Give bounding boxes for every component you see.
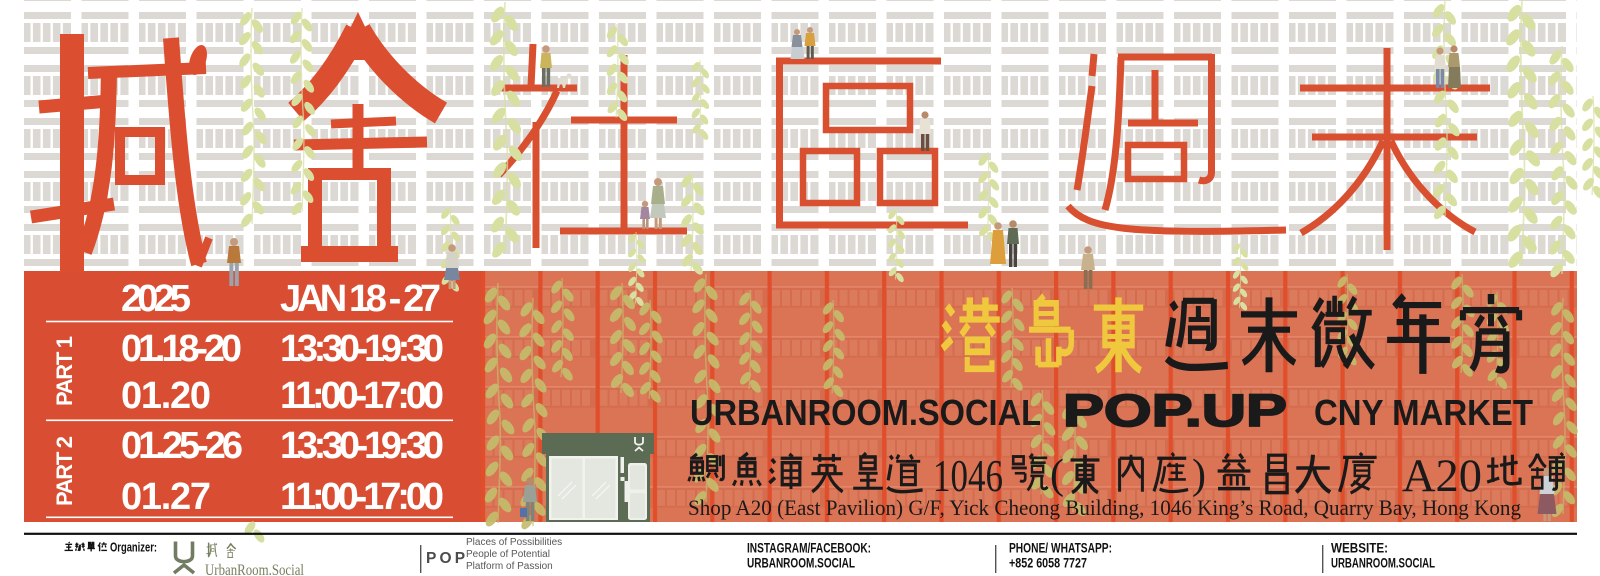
svg-text:01.18-20: 01.18-20 [121, 328, 242, 370]
svg-text:People of Potential: People of Potential [466, 549, 550, 560]
svg-text:Organizer:: Organizer: [110, 541, 157, 555]
svg-text:PART 2: PART 2 [52, 436, 77, 506]
svg-text:Places of Possibilities: Places of Possibilities [466, 537, 562, 548]
svg-text:Platform of Passion: Platform of Passion [466, 561, 553, 572]
svg-text:PART 1: PART 1 [52, 336, 77, 406]
svg-text:13:30-19:30: 13:30-19:30 [280, 425, 444, 467]
svg-text:JAN 18 - 27: JAN 18 - 27 [280, 278, 441, 320]
svg-text:PHONE/ WHATSAPP:: PHONE/ WHATSAPP: [1009, 541, 1112, 556]
svg-text:Shop A20 (East Pavilion) G/F,: Shop A20 (East Pavilion) G/F, Yick Cheon… [688, 495, 1521, 520]
svg-text:01.27: 01.27 [121, 476, 211, 518]
svg-text:+852 6058 7727: +852 6058 7727 [1009, 556, 1087, 571]
svg-text:01.25-26: 01.25-26 [121, 425, 243, 467]
svg-text:URBANROOM.SOCIAL: URBANROOM.SOCIAL [1331, 556, 1435, 571]
svg-text:URBANROOM.SOCIAL: URBANROOM.SOCIAL [747, 556, 855, 571]
svg-text:1046: 1046 [933, 450, 1003, 501]
svg-text:11:00-17:00: 11:00-17:00 [280, 375, 444, 417]
svg-text:POP.UP: POP.UP [1063, 385, 1287, 436]
svg-text:(: ( [1050, 452, 1064, 498]
svg-text:): ) [1192, 452, 1206, 498]
svg-text:CNY MARKET: CNY MARKET [1314, 392, 1533, 433]
svg-text:UrbanRoom.Social: UrbanRoom.Social [205, 562, 304, 576]
svg-text:URBANROOM.SOCIAL: URBANROOM.SOCIAL [690, 392, 1041, 433]
svg-text:11:00-17:00: 11:00-17:00 [280, 476, 444, 518]
svg-text:WEBSITE:: WEBSITE: [1331, 541, 1388, 556]
svg-text:2025: 2025 [121, 278, 191, 320]
svg-text:13:30-19:30: 13:30-19:30 [280, 328, 444, 370]
svg-text:01.20: 01.20 [121, 375, 211, 417]
svg-text:POP: POP [426, 550, 468, 567]
svg-text:INSTAGRAM/FACEBOOK:: INSTAGRAM/FACEBOOK: [747, 541, 871, 556]
